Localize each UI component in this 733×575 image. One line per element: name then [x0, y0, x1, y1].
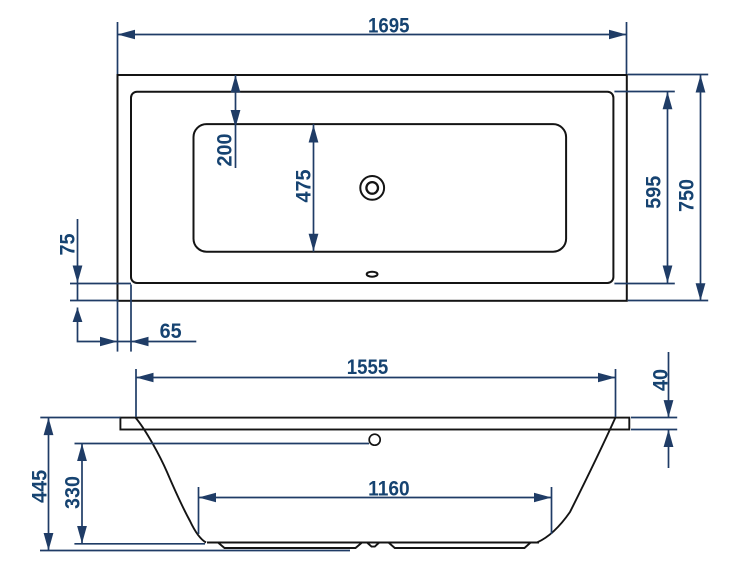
svg-text:475: 475 — [293, 169, 316, 202]
svg-text:40: 40 — [649, 369, 672, 391]
svg-text:595: 595 — [643, 175, 666, 208]
svg-text:330: 330 — [62, 476, 85, 509]
svg-text:750: 750 — [676, 179, 699, 212]
svg-text:1695: 1695 — [368, 15, 410, 38]
svg-text:445: 445 — [28, 470, 51, 503]
svg-text:200: 200 — [214, 134, 237, 167]
svg-text:1160: 1160 — [368, 478, 410, 501]
svg-text:75: 75 — [57, 233, 80, 255]
svg-text:65: 65 — [160, 320, 182, 343]
svg-text:1555: 1555 — [347, 356, 389, 379]
